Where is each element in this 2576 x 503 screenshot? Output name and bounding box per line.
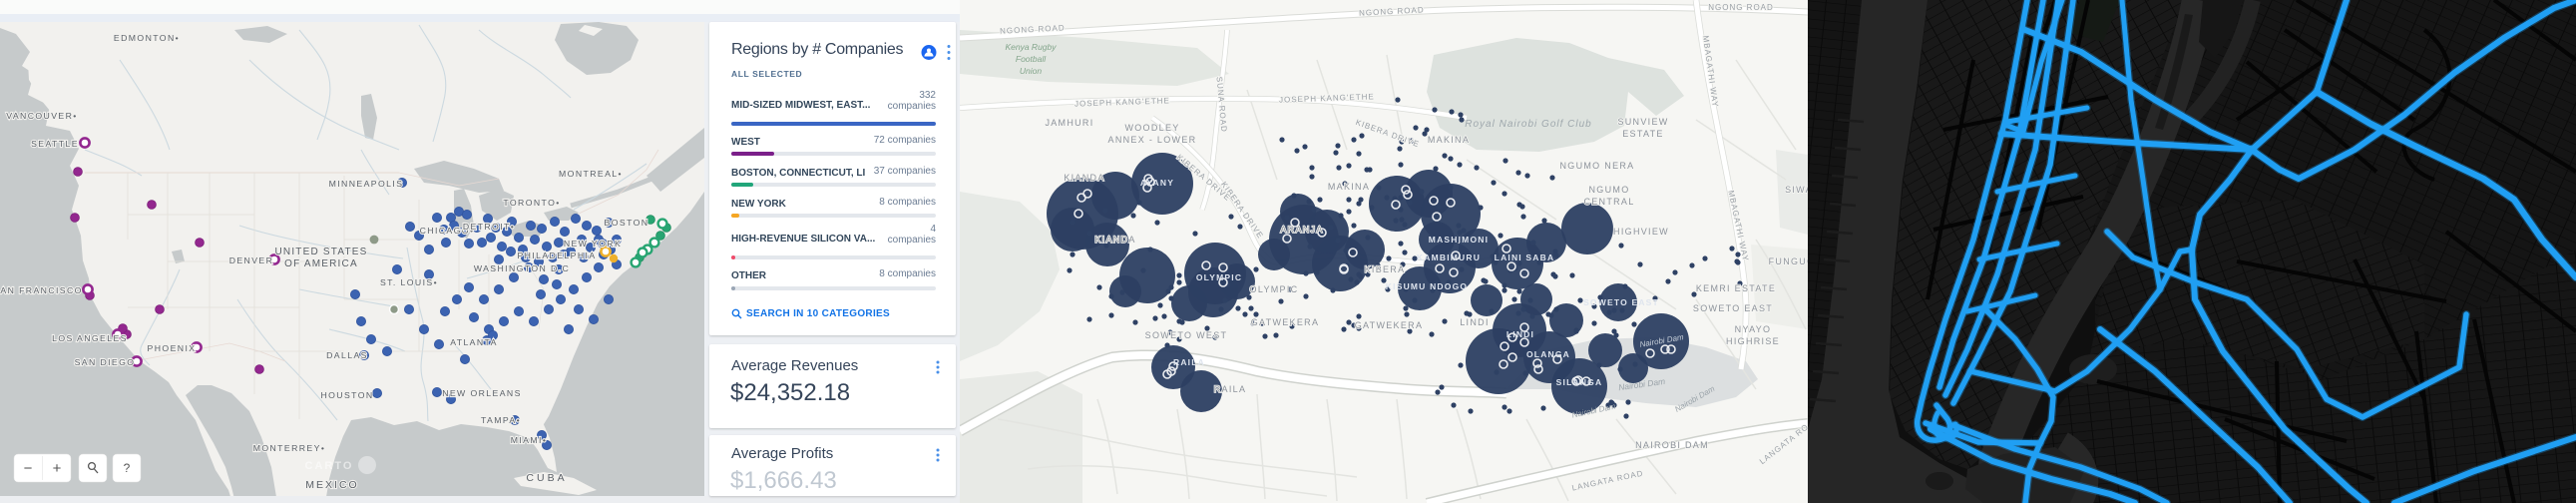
svg-text:LOS ANGELES: LOS ANGELES: [52, 333, 128, 343]
svg-text:NEW ORLEANS: NEW ORLEANS: [442, 388, 522, 398]
svg-text:HOUSTON: HOUSTON: [320, 390, 373, 400]
svg-text:MAKINA: MAKINA: [1328, 182, 1370, 192]
svg-text:LINDI: LINDI: [1506, 329, 1534, 339]
svg-text:EDMONTON•: EDMONTON•: [114, 33, 180, 43]
svg-text:TAMPA•: TAMPA•: [481, 415, 521, 425]
svg-text:FUNGUO: FUNGUO: [1769, 256, 1808, 266]
svg-text:DETROIT•: DETROIT•: [463, 222, 515, 232]
svg-text:SOWETO WEST: SOWETO WEST: [1145, 330, 1228, 340]
svg-text:NEW YORK: NEW YORK: [564, 239, 622, 249]
svg-text:SAN DIEGO: SAN DIEGO: [75, 357, 136, 367]
svg-text:SOWETO EAST: SOWETO EAST: [1693, 303, 1773, 313]
svg-text:LINDI: LINDI: [1460, 317, 1490, 327]
svg-text:NYAYO: NYAYO: [1735, 324, 1772, 334]
svg-text:SILANGA: SILANGA: [1556, 377, 1603, 387]
svg-text:DENVER: DENVER: [229, 255, 274, 265]
svg-text:NAIROBI DAM: NAIROBI DAM: [1635, 440, 1709, 450]
svg-text:HIGHRISE: HIGHRISE: [1726, 336, 1780, 346]
svg-text:NGUMO: NGUMO: [1589, 185, 1630, 195]
svg-text:Royal Nairobi Golf Club: Royal Nairobi Golf Club: [1465, 119, 1592, 130]
svg-text:AYANY: AYANY: [1140, 178, 1174, 188]
svg-text:WOODLEY: WOODLEY: [1124, 123, 1179, 133]
svg-text:KIANDA: KIANDA: [1064, 173, 1104, 183]
svg-text:ANNEX - LOWER: ANNEX - LOWER: [1108, 135, 1197, 145]
svg-text:LAINI SABA: LAINI SABA: [1495, 252, 1555, 262]
svg-text:MIAMI•: MIAMI•: [511, 435, 548, 445]
svg-text:MINNEAPOLIS: MINNEAPOLIS: [329, 179, 404, 189]
svg-text:+: +: [53, 460, 62, 477]
svg-text:NGONG ROAD: NGONG ROAD: [1708, 3, 1774, 12]
svg-text:PHOENIX: PHOENIX: [148, 343, 197, 353]
svg-text:GATWEKERA: GATWEKERA: [1251, 317, 1320, 327]
svg-text:MAKINA: MAKINA: [1428, 135, 1470, 145]
svg-text:SEATTLE: SEATTLE: [31, 139, 79, 149]
svg-text:SIWA: SIWA: [1785, 185, 1808, 195]
svg-text:SAN FRANCISCO: SAN FRANCISCO: [0, 285, 83, 295]
svg-text:KIBERA: KIBERA: [1365, 264, 1406, 274]
svg-text:KIANDA: KIANDA: [1094, 235, 1135, 245]
svg-text:?: ?: [124, 461, 131, 475]
svg-text:MASHIMONI: MASHIMONI: [1429, 235, 1489, 245]
svg-text:OLYMPIC: OLYMPIC: [1196, 272, 1242, 282]
svg-text:−: −: [24, 460, 33, 477]
svg-text:ST. LOUIS•: ST. LOUIS•: [380, 277, 438, 287]
svg-text:PHILADELPHIA: PHILADELPHIA: [517, 251, 596, 260]
svg-text:UNITED STATES: UNITED STATES: [274, 247, 367, 257]
svg-text:Kenya Rugby: Kenya Rugby: [1005, 42, 1057, 52]
svg-text:OLYMPIC: OLYMPIC: [1250, 284, 1299, 294]
svg-text:SUNVIEW: SUNVIEW: [1617, 117, 1668, 127]
svg-text:MONTERREY•: MONTERREY•: [253, 443, 326, 453]
svg-text:OLANGA: OLANGA: [1526, 349, 1570, 359]
svg-text:NGUMO NERA: NGUMO NERA: [1559, 161, 1634, 171]
svg-text:ARANJA: ARANJA: [1280, 225, 1323, 235]
svg-text:KISUMU NDOGO: KISUMU NDOGO: [1386, 281, 1468, 291]
svg-text:SOWETO EAST: SOWETO EAST: [1583, 297, 1659, 307]
svg-text:ATLANTA: ATLANTA: [450, 337, 498, 347]
svg-text:HIGHVIEW: HIGHVIEW: [1613, 227, 1669, 237]
svg-text:MEXICO: MEXICO: [305, 479, 358, 491]
svg-text:KAMBIMURU: KAMBIMURU: [1417, 252, 1481, 262]
svg-text:DALLAS: DALLAS: [326, 350, 368, 360]
svg-text:CUBA: CUBA: [526, 472, 567, 484]
svg-text:RAILA: RAILA: [1173, 357, 1205, 367]
svg-text:ESTATE: ESTATE: [1622, 129, 1663, 139]
svg-text:KEMRI ESTATE: KEMRI ESTATE: [1696, 283, 1776, 293]
svg-text:CARTO: CARTO: [305, 460, 354, 472]
svg-text:Football: Football: [1016, 54, 1047, 64]
svg-text:VANCOUVER•: VANCOUVER•: [6, 111, 77, 121]
svg-text:MONTREAL•: MONTREAL•: [559, 169, 623, 179]
svg-text:Union: Union: [1020, 66, 1042, 76]
svg-text:TORONTO•: TORONTO•: [503, 198, 560, 208]
svg-text:OF AMERICA: OF AMERICA: [284, 258, 358, 269]
svg-text:CENTRAL: CENTRAL: [1583, 197, 1634, 207]
svg-text:RAILA: RAILA: [1214, 384, 1247, 394]
svg-text:JAMHURI: JAMHURI: [1045, 118, 1093, 128]
svg-text:WASHINGTON D.C: WASHINGTON D.C: [474, 263, 570, 273]
svg-text:BOSTON: BOSTON: [605, 218, 649, 228]
svg-text:GATWEKERA: GATWEKERA: [1355, 320, 1424, 330]
